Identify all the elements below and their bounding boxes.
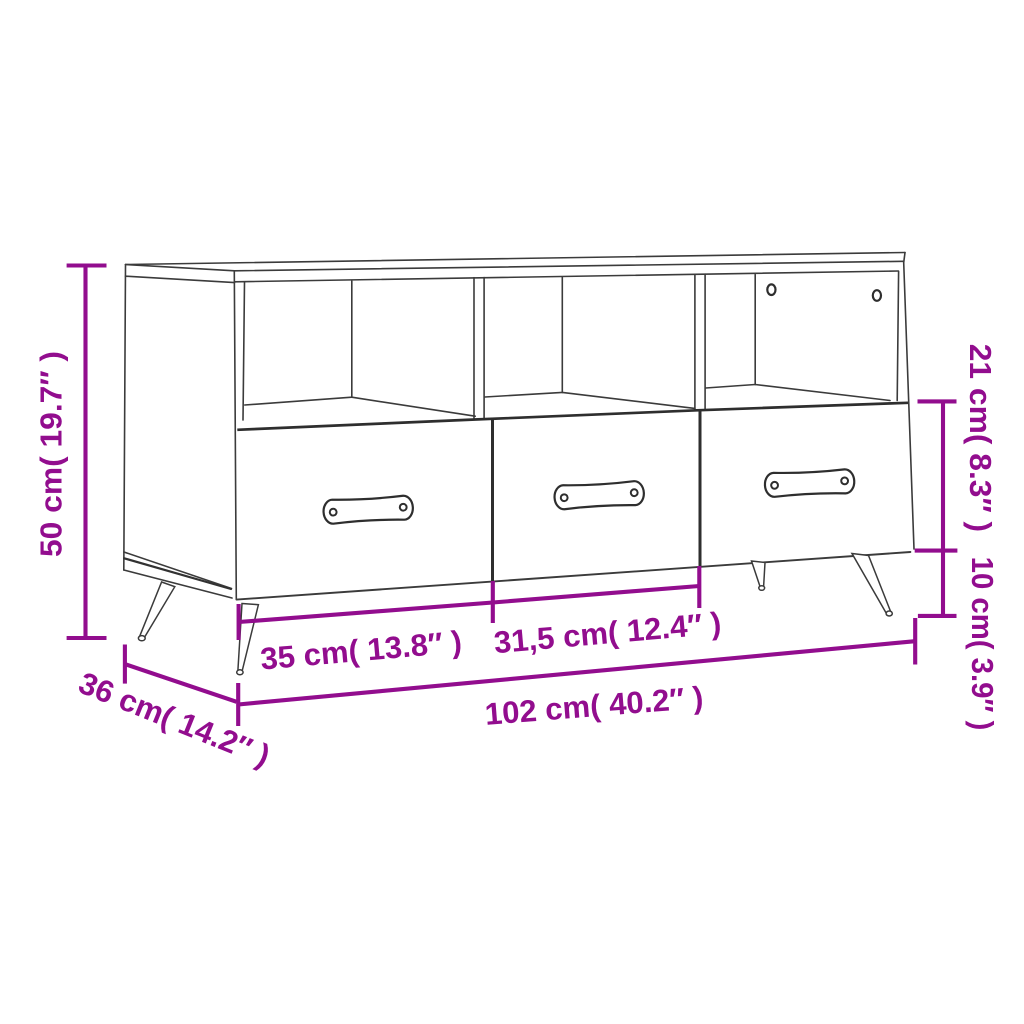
- svg-text:21 cm( 8.3″ ): 21 cm( 8.3″ ): [963, 344, 998, 532]
- svg-text:10 cm( 3.9″ ): 10 cm( 3.9″ ): [965, 557, 1000, 731]
- svg-text:50 cm( 19.7″ ): 50 cm( 19.7″ ): [33, 351, 68, 557]
